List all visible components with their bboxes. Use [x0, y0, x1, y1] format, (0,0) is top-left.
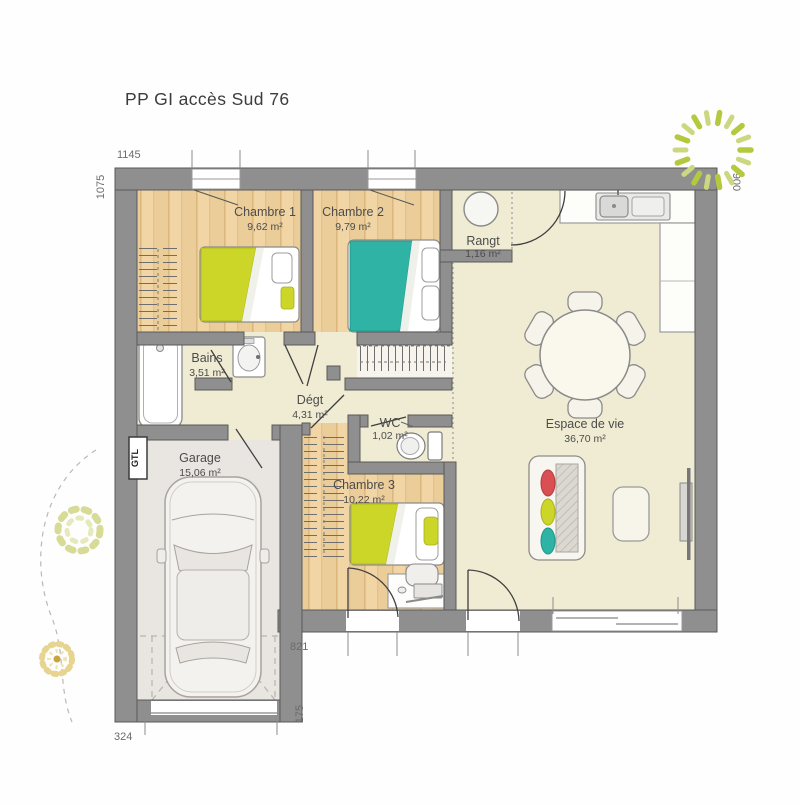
room-label-rangt: Rangt [466, 234, 500, 248]
car-icon [157, 477, 269, 697]
shrub-icon [42, 644, 72, 674]
room-label-degt: Dégt [297, 393, 324, 407]
gtl-label: GTL [130, 449, 140, 467]
room-label-garage: Garage [179, 451, 221, 465]
room-label-chambre3: Chambre 3 [333, 478, 395, 492]
tree-icon [58, 509, 100, 551]
closet-hatch-chambre1 [139, 246, 177, 332]
dim-top: 1145 [117, 149, 141, 161]
sofa-icon [529, 456, 585, 560]
driveway-path [41, 450, 96, 722]
bed-chambre1-icon [200, 247, 299, 322]
room-area-rangt: 1,16 m² [465, 248, 501, 260]
floor-plan-canvas: GTL Chambre 1 9,62 m² Chambre 2 9,79 m² … [0, 0, 800, 804]
room-area-bains: 3,51 m² [189, 367, 225, 379]
room-area-espace-de-vie: 36,70 m² [564, 433, 606, 445]
room-area-garage: 15,06 m² [179, 467, 221, 479]
room-area-degt: 4,31 m² [292, 409, 328, 421]
coffee-table-icon [613, 487, 649, 541]
dim-bottom-step: 821 [290, 641, 308, 653]
dim-garage-side: 175 [294, 705, 306, 723]
plan-title: PP GI accès Sud 76 [125, 89, 289, 109]
dim-left: 1075 [95, 175, 107, 199]
room-label-bains: Bains [191, 351, 222, 365]
room-label-chambre1: Chambre 1 [234, 205, 296, 219]
gtl-box: GTL [129, 437, 147, 479]
bed-chambre2-icon [348, 240, 440, 332]
room-area-chambre1: 9,62 m² [247, 221, 283, 233]
room-area-wc: 1,02 m² [372, 430, 408, 442]
closet-hatch-chambre2 [357, 346, 450, 377]
dim-garage-bottom: 324 [114, 731, 132, 743]
room-label-chambre2: Chambre 2 [322, 205, 384, 219]
room-label-espace-de-vie: Espace de vie [546, 417, 625, 431]
room-area-chambre2: 9,79 m² [335, 221, 371, 233]
water-heater-icon [464, 192, 498, 226]
bathtub-icon [139, 334, 182, 428]
room-label-wc: WC [380, 416, 401, 430]
room-area-chambre3: 10,22 m² [343, 494, 385, 506]
bed-chambre3-icon [350, 503, 444, 565]
closet-hatch-chambre3 [304, 434, 344, 558]
